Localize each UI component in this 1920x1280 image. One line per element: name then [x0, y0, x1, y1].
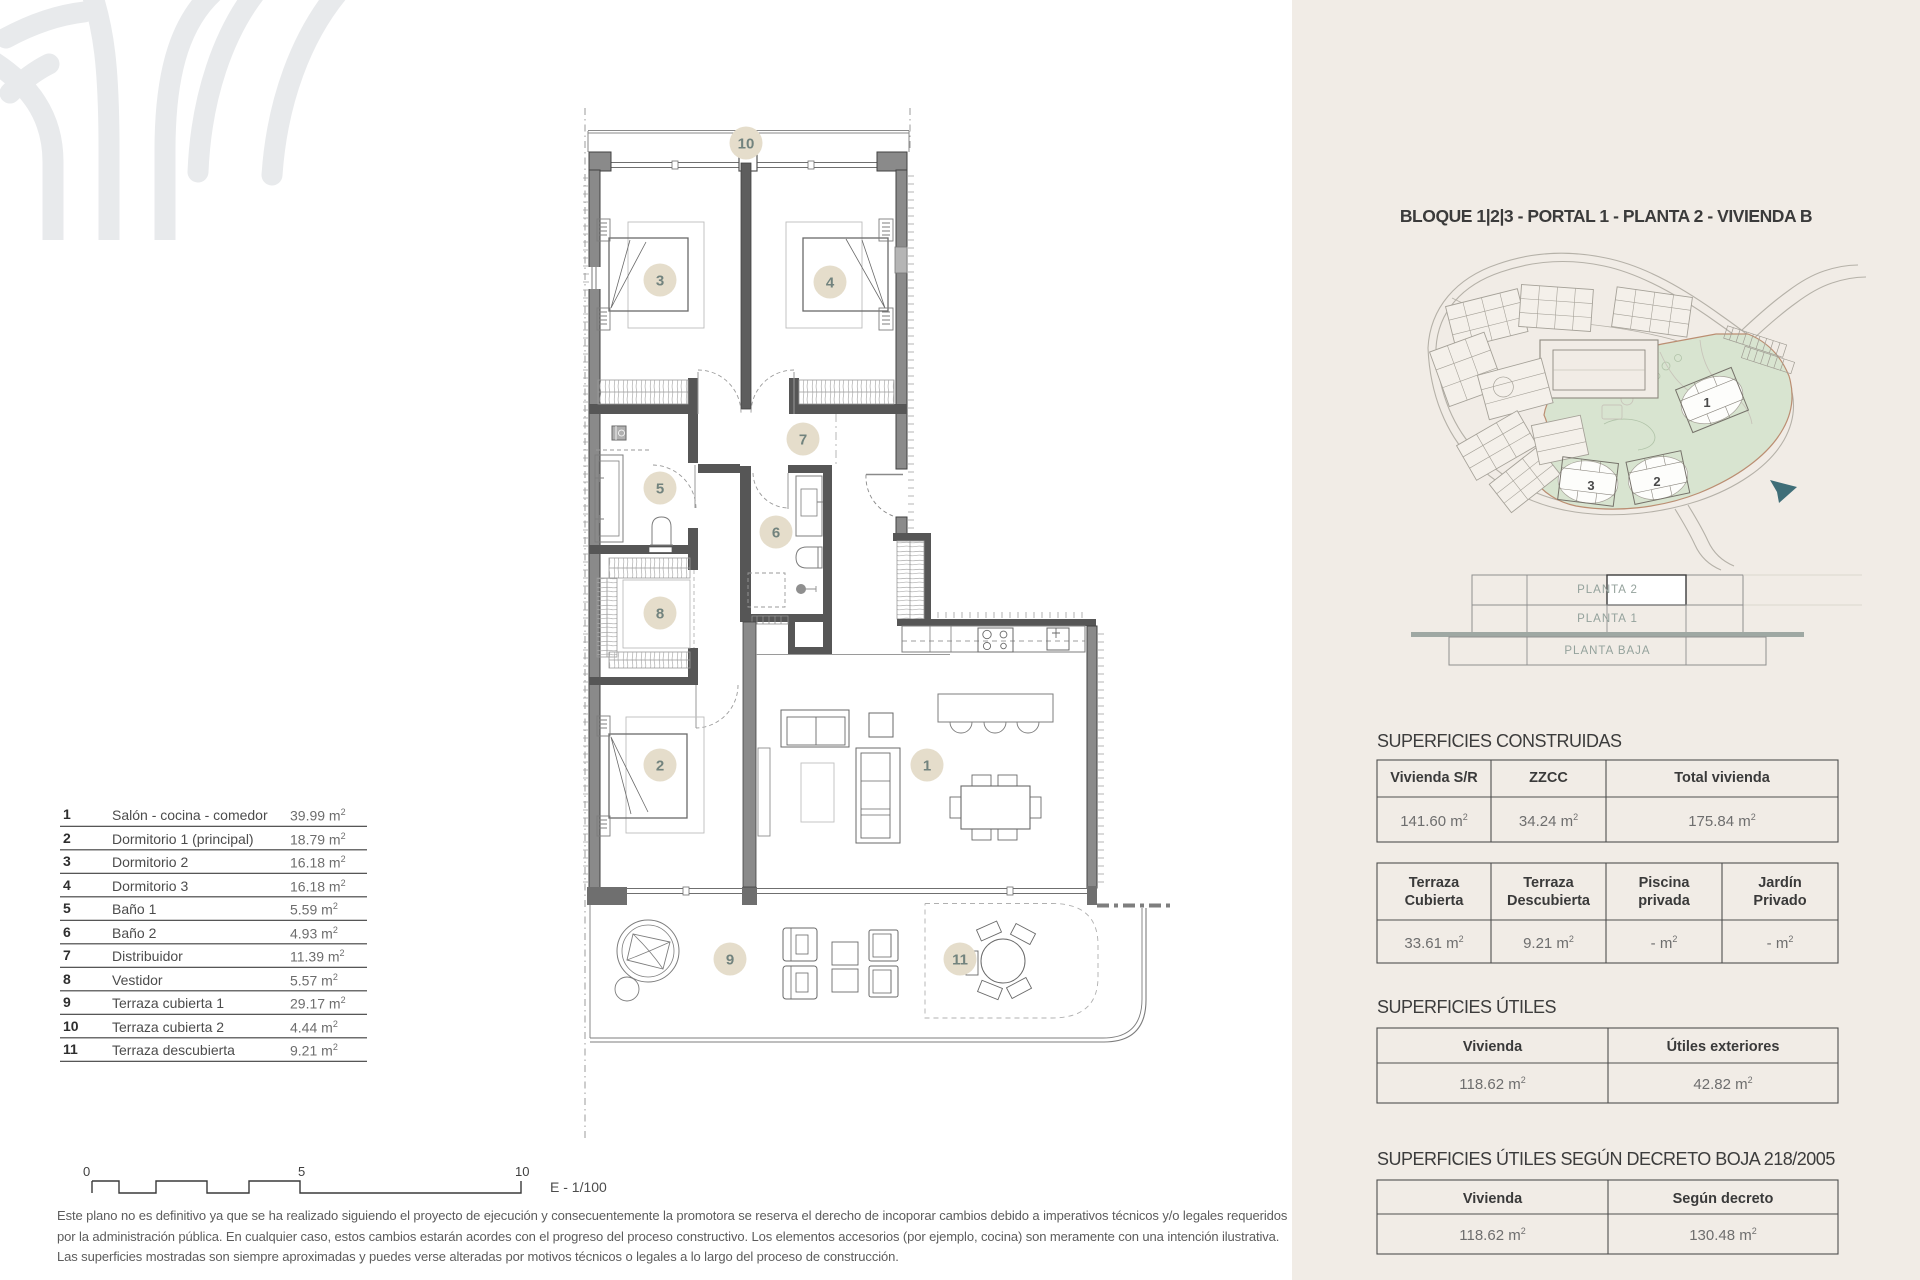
svg-text:8: 8 [656, 606, 664, 623]
svg-text:5: 5 [656, 481, 664, 498]
svg-text:3: 3 [1587, 478, 1594, 493]
svg-text:2: 2 [1653, 474, 1660, 489]
svg-text:1: 1 [1703, 395, 1710, 410]
svg-text:2: 2 [656, 758, 664, 775]
svg-text:7: 7 [799, 432, 807, 449]
svg-text:9: 9 [726, 952, 734, 969]
svg-text:1: 1 [923, 758, 931, 775]
svg-text:3: 3 [656, 273, 664, 290]
svg-text:10: 10 [738, 136, 755, 153]
svg-text:4: 4 [826, 275, 835, 292]
svg-text:11: 11 [952, 952, 968, 969]
svg-text:6: 6 [772, 525, 780, 542]
